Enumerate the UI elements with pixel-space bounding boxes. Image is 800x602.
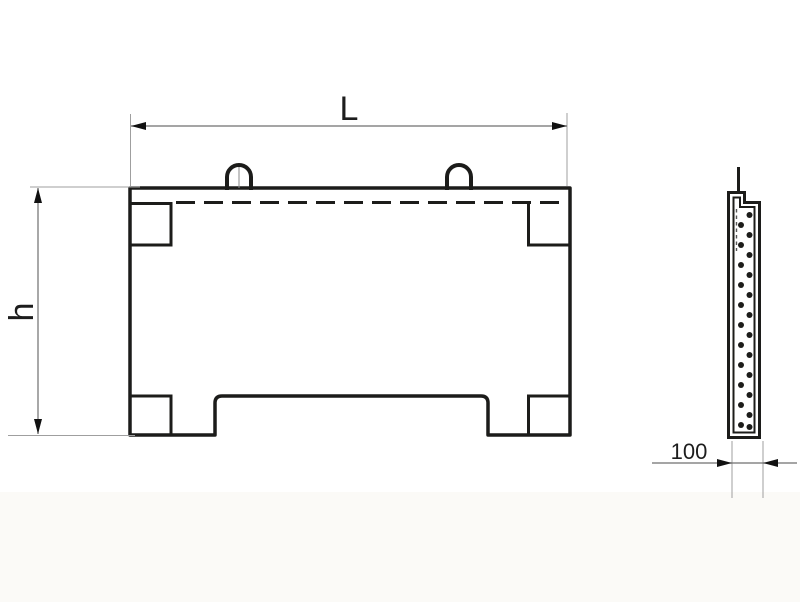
corner-notch-bottom-left [130, 396, 171, 435]
rebar-dot [738, 362, 744, 368]
corner-notch-bottom-right [529, 396, 571, 435]
technical-drawing: L h [0, 0, 800, 602]
dimension-length: L [131, 90, 568, 186]
thickness-dimension-label: 100 [671, 439, 708, 464]
rebar-dot [747, 424, 753, 430]
height-dimension-label: h [3, 303, 41, 322]
height-arrow-bottom [34, 419, 42, 434]
rebar-dot [738, 302, 744, 308]
rebar-dot [747, 212, 753, 218]
scan-shading [0, 492, 800, 602]
rebar-dot [738, 262, 744, 268]
front-view [130, 165, 570, 435]
rebar-dot [738, 282, 744, 288]
rebar-dot [738, 242, 744, 248]
length-arrow-right [552, 122, 567, 130]
rebar-dot [738, 382, 744, 388]
rebar-dot [747, 412, 753, 418]
rebar-dot [747, 372, 753, 378]
rebar-dots [738, 212, 753, 430]
side-view [729, 167, 760, 438]
dimension-height: h [3, 187, 140, 436]
length-dimension-label: L [340, 90, 359, 128]
corner-notch-top-right [529, 204, 571, 246]
dimension-thickness: 100 [652, 439, 797, 498]
rebar-dot [747, 232, 753, 238]
length-arrow-left [131, 122, 146, 130]
rebar-dot [747, 252, 753, 258]
corner-notch-top-left [130, 204, 171, 246]
panel-outline [130, 188, 570, 435]
rebar-dot [738, 342, 744, 348]
rebar-dot [747, 312, 753, 318]
drawing-svg: L h [0, 0, 800, 602]
rebar-dot [747, 392, 753, 398]
rebar-dot [747, 352, 753, 358]
rebar-dot [738, 422, 744, 428]
rebar-dot [747, 332, 753, 338]
thickness-arrow-right [763, 459, 778, 467]
rebar-dot [738, 222, 744, 228]
rebar-dot [738, 322, 744, 328]
thickness-arrow-left [717, 459, 732, 467]
rebar-dot [747, 292, 753, 298]
rebar-dot [747, 272, 753, 278]
height-arrow-top [34, 188, 42, 203]
rebar-dot [738, 402, 744, 408]
